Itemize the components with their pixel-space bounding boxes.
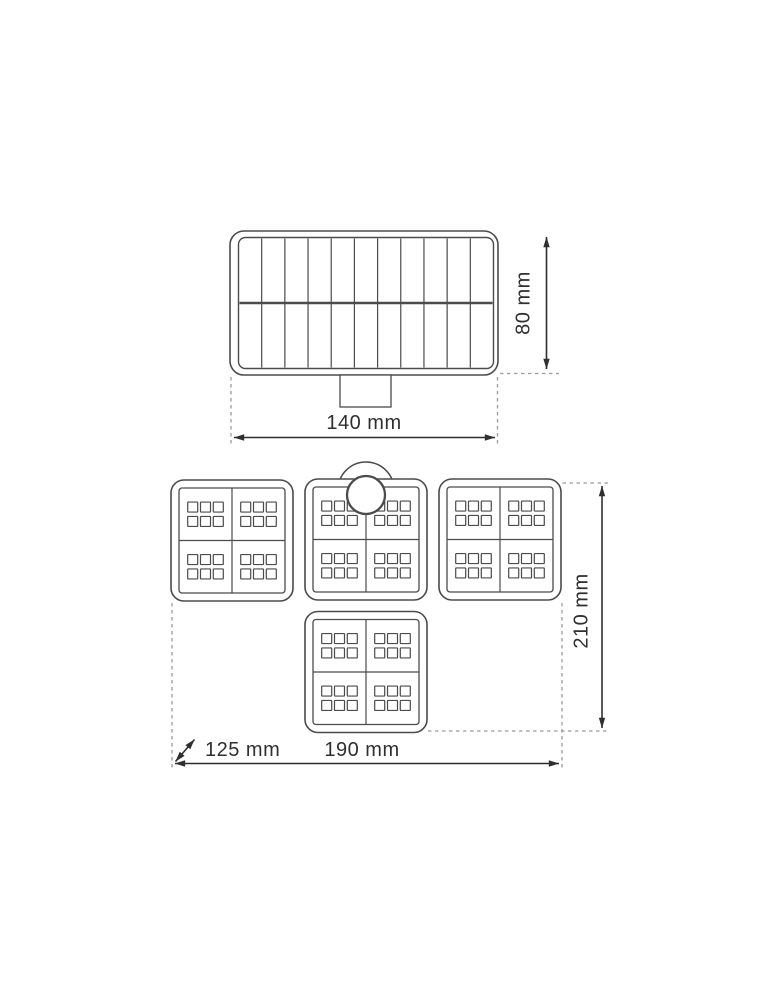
technical-drawing: 140 mm 80 mm 210 mm 190 mm 125 mm <box>0 0 774 1000</box>
dimension-label-head-height: 210 mm <box>571 573 593 648</box>
mounting-bracket <box>340 375 391 407</box>
led-module-right <box>439 479 561 600</box>
dimension-line-head-depth <box>176 740 195 762</box>
solar-panel-front-view <box>230 231 498 407</box>
led-module-left <box>171 480 293 601</box>
drawing-canvas: 140 mm 80 mm 210 mm 190 mm 125 mm <box>0 0 774 1000</box>
dimension-label-front-height: 80 mm <box>513 271 535 335</box>
dimension-head-depth: 125 mm <box>176 739 281 762</box>
motion-sensor-lens <box>347 476 385 514</box>
led-head-top-view <box>171 462 561 733</box>
dimension-label-head-width: 190 mm <box>324 739 399 761</box>
dimension-label-head-depth: 125 mm <box>205 739 280 761</box>
led-module-center <box>305 462 427 600</box>
dimension-label-front-width: 140 mm <box>326 412 401 434</box>
dimension-front-height: 80 mm <box>500 237 559 374</box>
led-module-bottom <box>305 612 427 733</box>
